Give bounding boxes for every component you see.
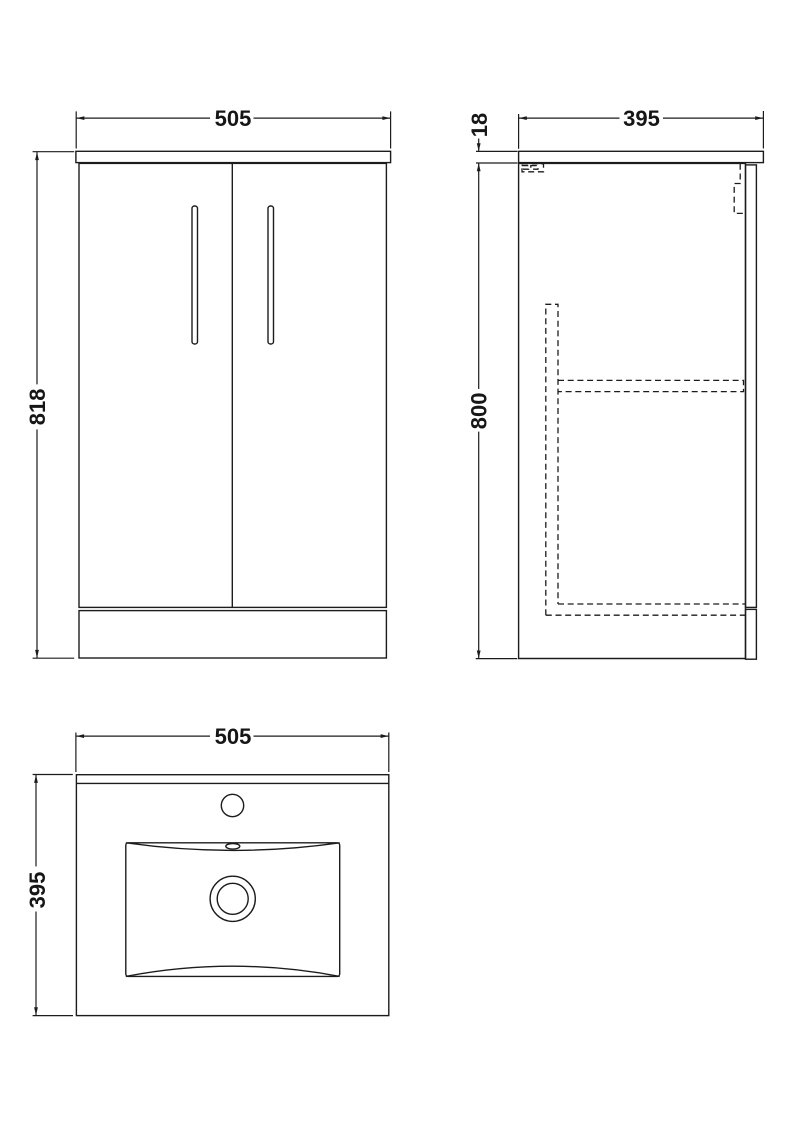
svg-text:395: 395 [623, 106, 660, 131]
svg-text:505: 505 [215, 724, 252, 749]
svg-text:18: 18 [467, 113, 492, 137]
svg-text:395: 395 [25, 872, 50, 909]
svg-text:818: 818 [25, 389, 50, 426]
svg-text:800: 800 [467, 393, 492, 430]
svg-text:505: 505 [215, 106, 252, 131]
